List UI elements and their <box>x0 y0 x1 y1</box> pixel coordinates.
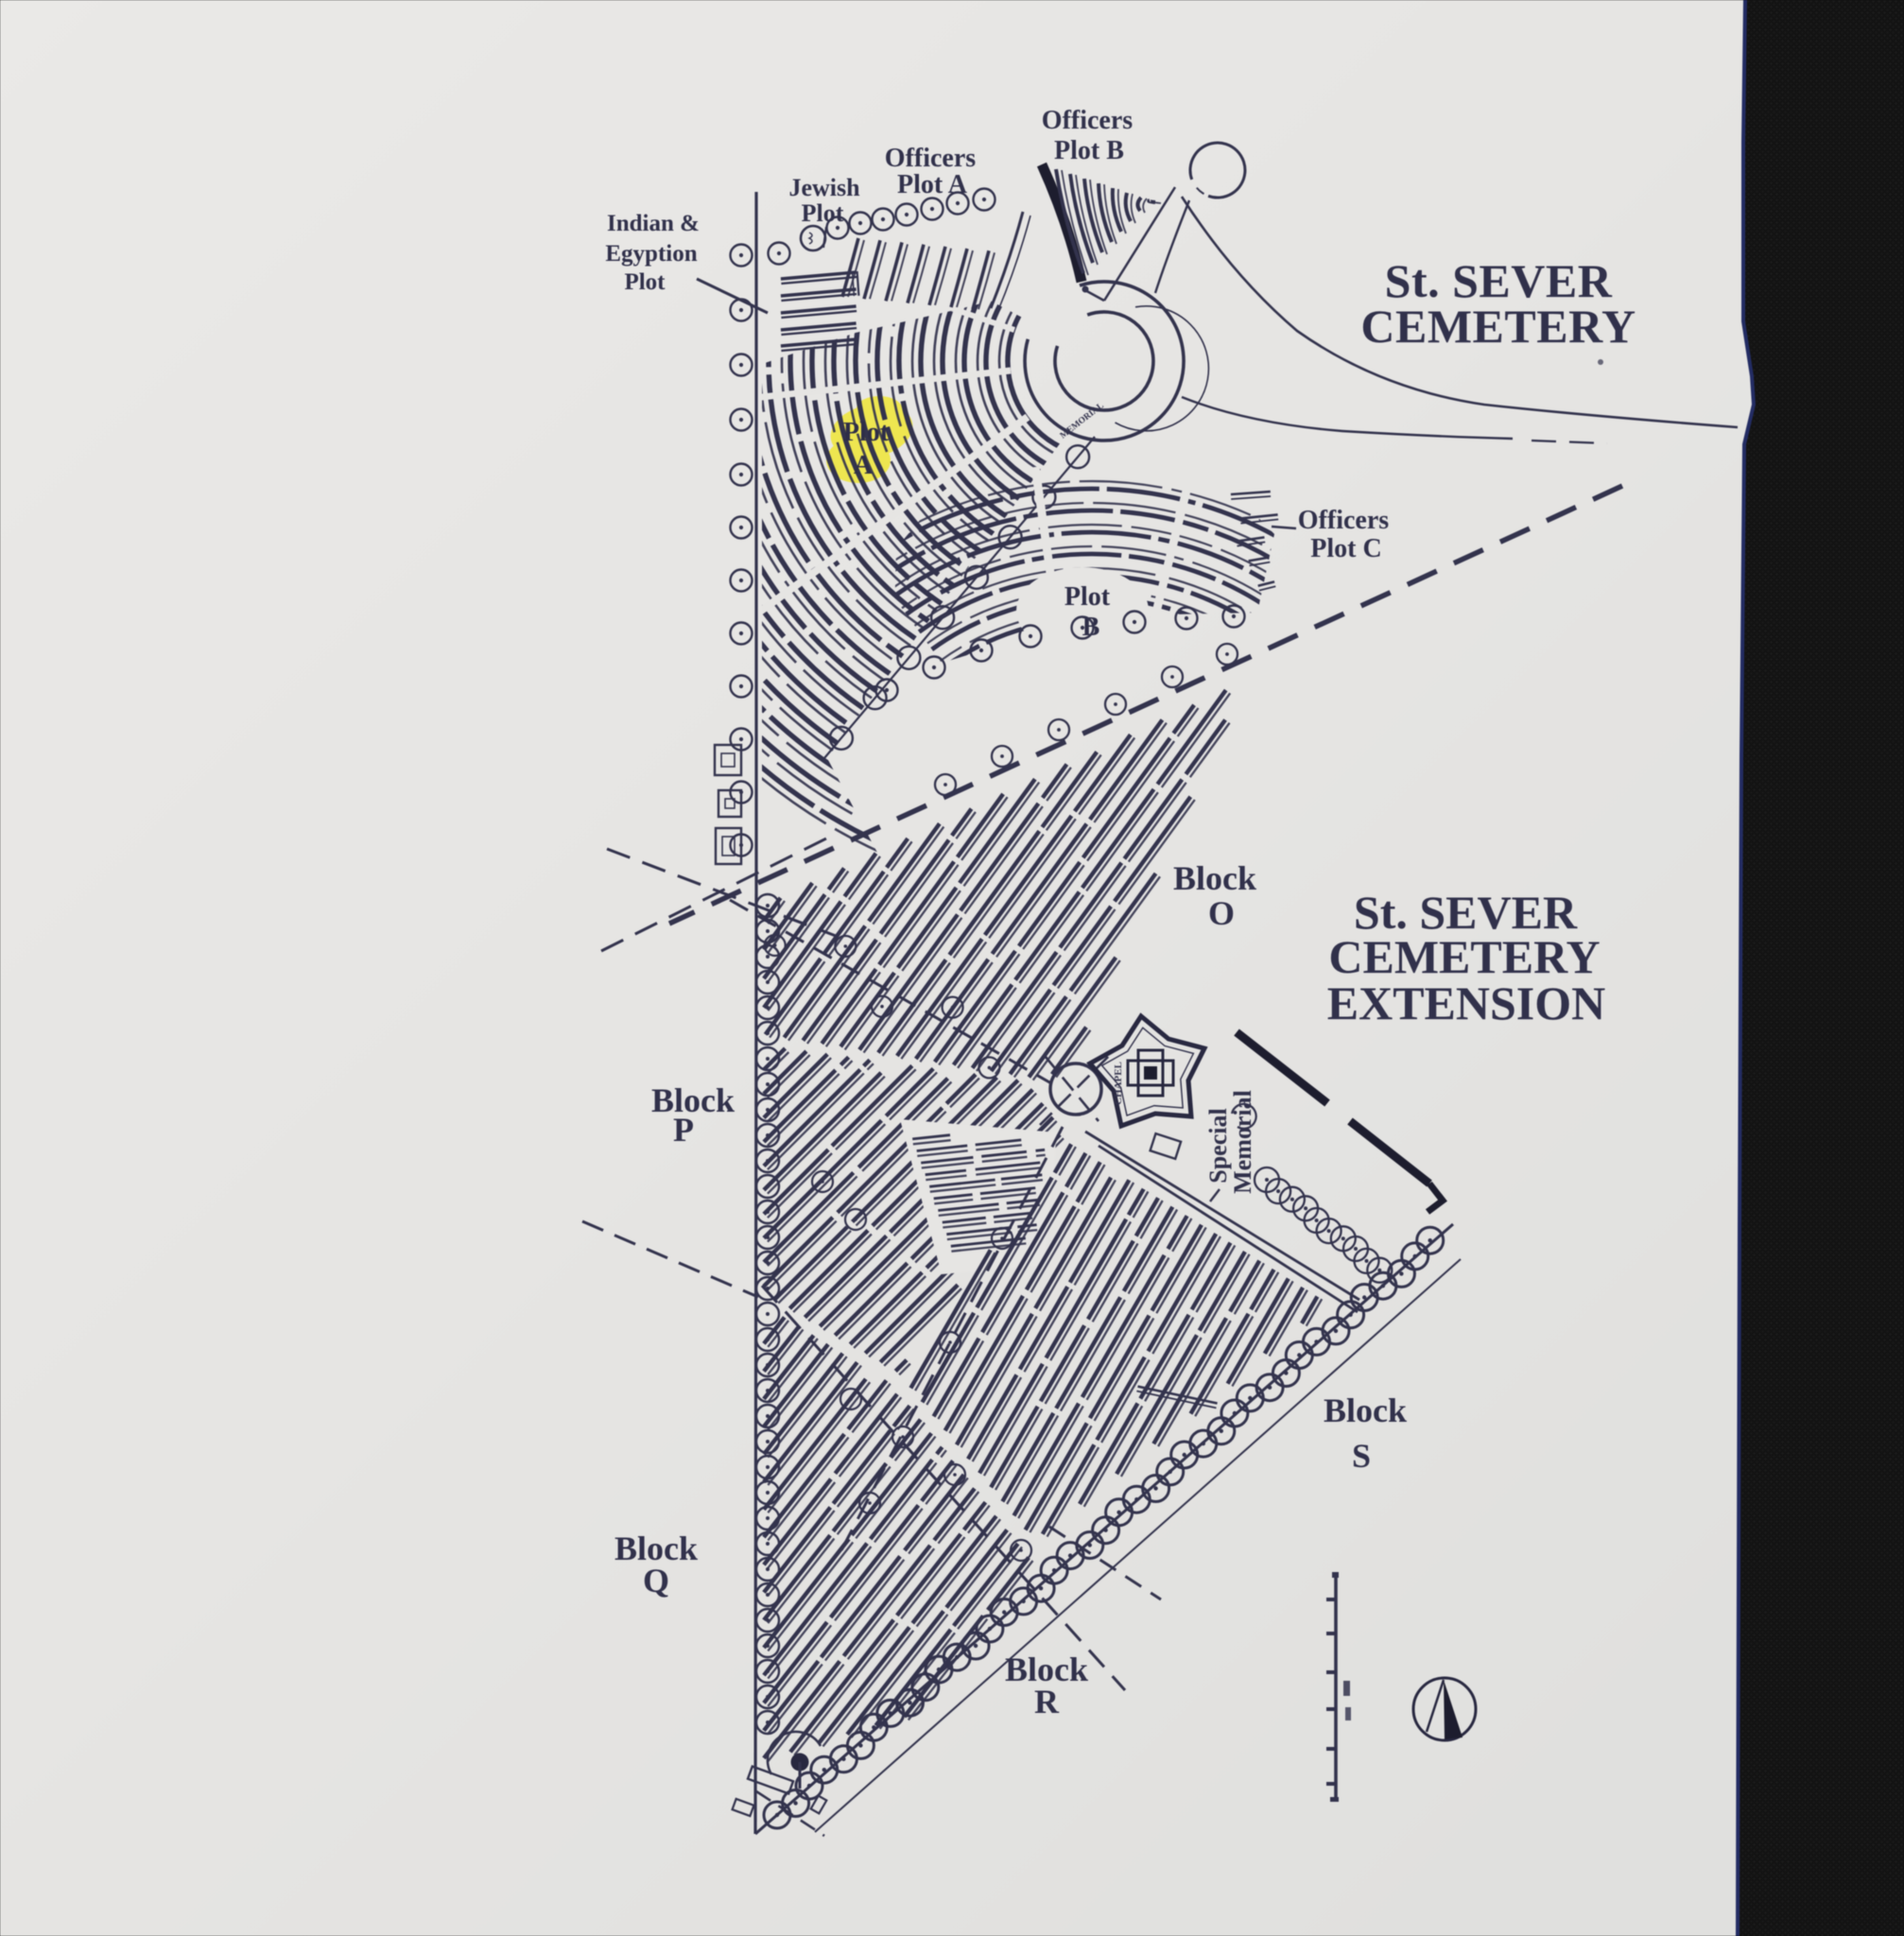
svg-text:R: R <box>1034 1683 1060 1720</box>
svg-text:Plot A: Plot A <box>897 170 968 199</box>
svg-text:Indian &: Indian & <box>607 211 700 236</box>
svg-text:Plot C: Plot C <box>1310 534 1381 563</box>
svg-text:Jewish: Jewish <box>788 174 860 201</box>
svg-text:P: P <box>673 1111 694 1149</box>
svg-text:CHAPEL: CHAPEL <box>1113 1062 1124 1105</box>
svg-text:CEMETERY: CEMETERY <box>1360 300 1636 353</box>
svg-text:CEMETERY: CEMETERY <box>1328 930 1600 983</box>
svg-text:Plot B: Plot B <box>1054 136 1124 165</box>
svg-text:Officers: Officers <box>1298 506 1389 535</box>
svg-text:O: O <box>1208 894 1235 932</box>
svg-text:Q: Q <box>643 1562 669 1599</box>
svg-text:Plot: Plot <box>843 418 890 447</box>
svg-text:EXTENSION: EXTENSION <box>1327 977 1606 1029</box>
svg-text:S: S <box>1352 1437 1371 1475</box>
svg-text:Plot: Plot <box>624 269 666 295</box>
svg-text:Egyption: Egyption <box>605 241 697 267</box>
svg-text:Block: Block <box>1324 1391 1407 1429</box>
svg-text:Plot: Plot <box>802 199 844 227</box>
svg-text:Memorial: Memorial <box>1229 1090 1256 1194</box>
svg-text:A: A <box>854 451 874 480</box>
svg-text:Officers: Officers <box>885 144 976 173</box>
svg-text:Officers: Officers <box>1042 106 1133 135</box>
svg-text:Block: Block <box>1173 859 1256 897</box>
svg-text:Special: Special <box>1204 1108 1232 1183</box>
svg-text:Plot: Plot <box>1065 582 1111 612</box>
